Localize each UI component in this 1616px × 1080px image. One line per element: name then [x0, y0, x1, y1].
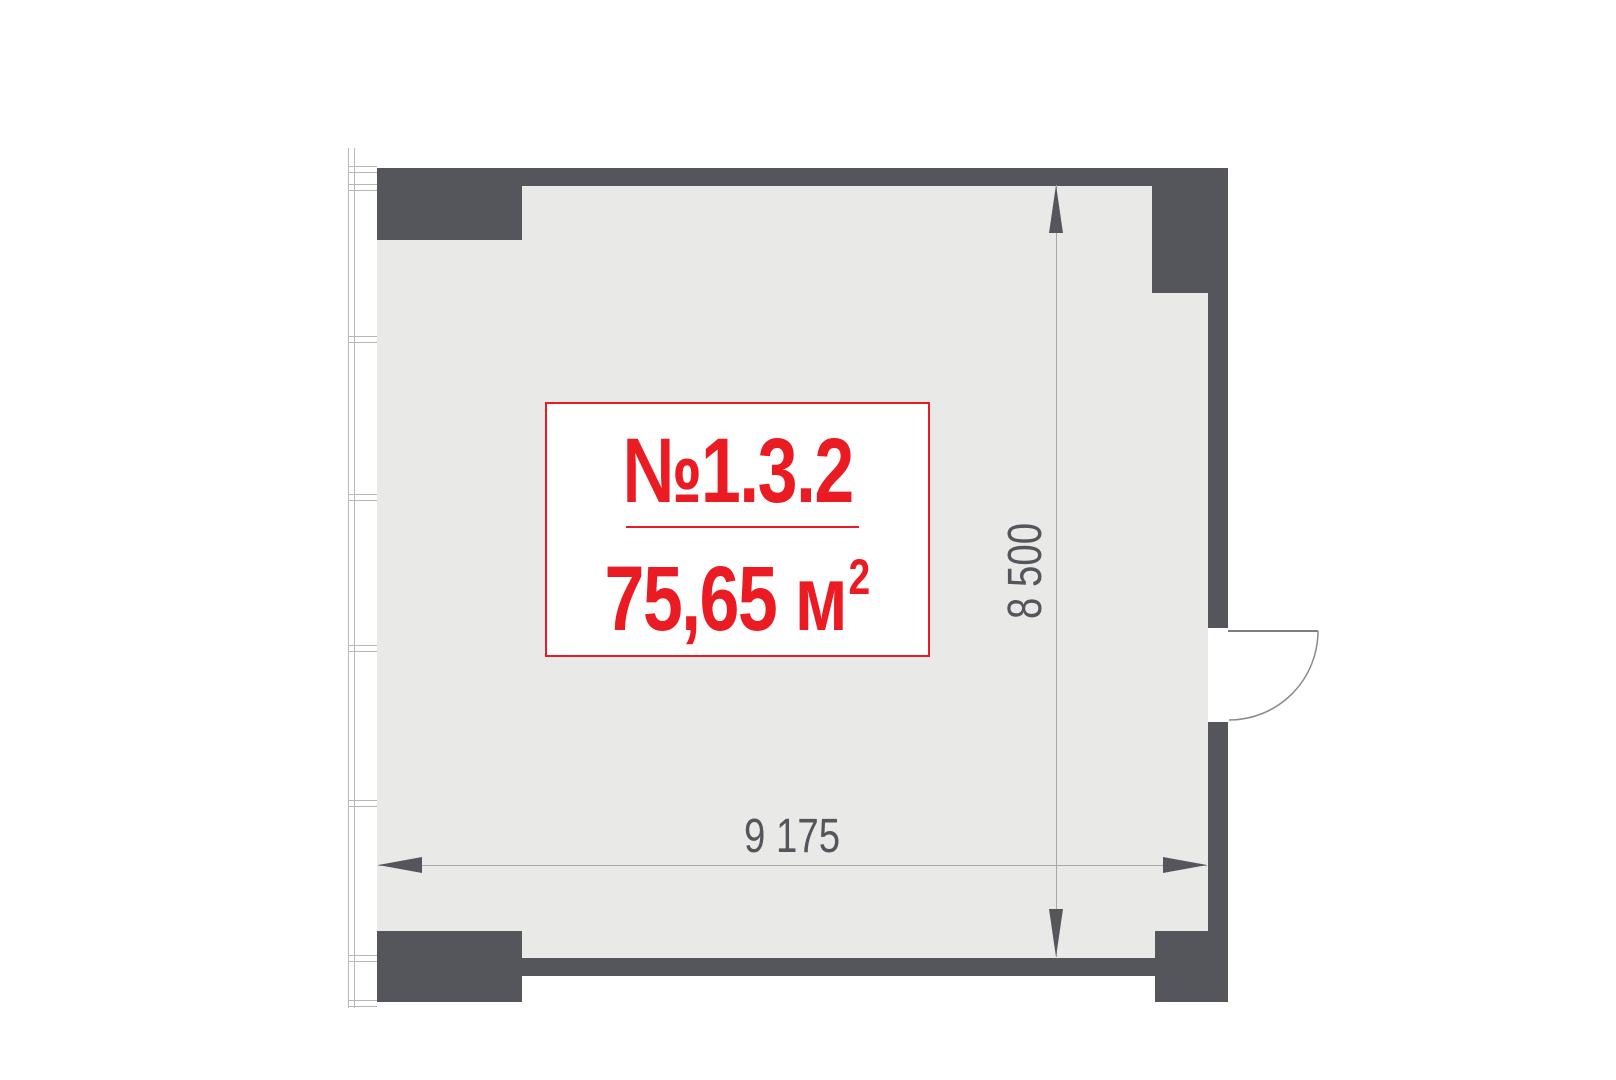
wall-pier-bottom-right [1155, 931, 1228, 1002]
door-arc [1229, 631, 1318, 720]
dimension-arrow-down-icon [1049, 909, 1063, 957]
window-mullion [348, 494, 377, 501]
window-mullion [348, 1000, 377, 1007]
wall-bottom [522, 958, 1155, 976]
dimension-arrow-right-icon [1163, 857, 1207, 873]
unit-label-divider [626, 526, 859, 528]
window-mullion [348, 184, 377, 191]
door-swing [1225, 627, 1323, 727]
window-mullion [348, 955, 377, 962]
unit-area: 75,65 м [605, 548, 847, 650]
dimension-line-vertical [1056, 185, 1057, 957]
window-glass-line [354, 148, 355, 1008]
window-mullion [348, 166, 377, 173]
window-mullion [348, 800, 377, 807]
wall-pier-bottom-left [377, 931, 522, 1002]
unit-area-line: 75,65 м2 [547, 552, 928, 661]
wall-right-upper [1208, 293, 1228, 628]
floor-plan: 8 500 9 175 №1.3.2 75,65 м2 [0, 0, 1616, 1080]
dimension-line-horizontal [378, 865, 1207, 866]
dimension-label-height: 8 500 [1001, 471, 1051, 671]
unit-area-sup: 2 [849, 549, 871, 605]
wall-pier-top-right [1152, 168, 1228, 293]
dimension-height-text: 8 500 [1001, 523, 1051, 619]
dimension-width-text: 9 175 [744, 812, 840, 862]
unit-number-line: №1.3.2 [547, 424, 928, 519]
window-glass-line [348, 148, 349, 1008]
unit-number: №1.3.2 [622, 424, 852, 519]
dimension-arrow-left-icon [378, 857, 422, 873]
dimension-label-width: 9 175 [692, 812, 892, 862]
window-mullion [348, 645, 377, 652]
dimension-arrow-up-icon [1049, 185, 1063, 233]
unit-label-box[interactable]: №1.3.2 75,65 м2 [545, 402, 930, 657]
window-mullion [348, 336, 377, 343]
wall-pier-top-left [377, 168, 522, 240]
